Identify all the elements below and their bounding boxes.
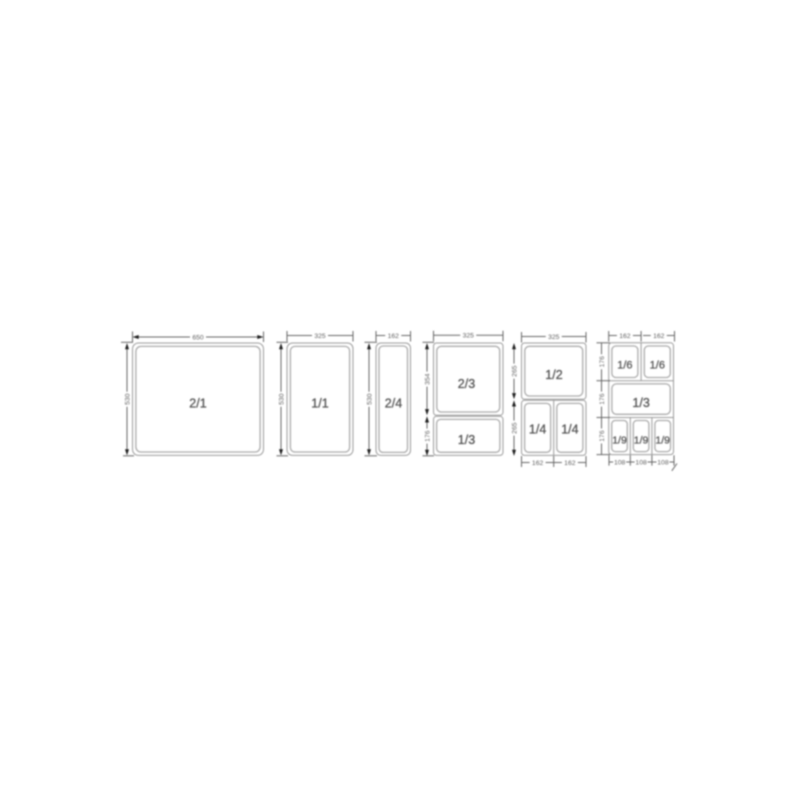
svg-text:325: 325: [548, 334, 560, 341]
svg-text:162: 162: [653, 333, 665, 340]
svg-text:1/9: 1/9: [612, 435, 627, 447]
svg-text:176: 176: [424, 430, 431, 442]
svg-text:176: 176: [599, 356, 606, 368]
svg-text:530: 530: [124, 393, 131, 405]
svg-text:530: 530: [278, 393, 285, 405]
svg-text:162: 162: [564, 460, 576, 467]
svg-text:162: 162: [532, 460, 544, 467]
svg-text:162: 162: [619, 333, 631, 340]
svg-text:108: 108: [614, 459, 626, 466]
svg-text:1/1: 1/1: [311, 397, 328, 411]
svg-text:176: 176: [599, 430, 606, 442]
svg-text:1/6: 1/6: [650, 360, 665, 372]
svg-text:325: 325: [314, 333, 326, 340]
svg-text:650: 650: [192, 334, 204, 341]
svg-text:1/3: 1/3: [458, 433, 475, 447]
svg-text:108: 108: [635, 459, 647, 466]
svg-text:265: 265: [511, 422, 518, 434]
svg-text:1/2: 1/2: [545, 368, 562, 382]
svg-text:1/9: 1/9: [634, 435, 649, 447]
svg-text:1/3: 1/3: [632, 396, 649, 410]
svg-text:176: 176: [599, 393, 606, 405]
svg-text:530: 530: [366, 393, 373, 405]
svg-text:2/3: 2/3: [458, 377, 475, 391]
svg-text:265: 265: [511, 365, 518, 377]
svg-text:325: 325: [463, 333, 475, 340]
svg-text:108: 108: [657, 459, 669, 466]
svg-text:1/9: 1/9: [655, 435, 670, 447]
svg-text:1/4: 1/4: [561, 423, 578, 437]
svg-text:1/6: 1/6: [617, 360, 632, 372]
svg-text:162: 162: [388, 333, 400, 340]
svg-text:2/4: 2/4: [385, 397, 402, 411]
svg-text:1/4: 1/4: [529, 423, 546, 437]
svg-text:2/1: 2/1: [189, 397, 206, 411]
svg-text:354: 354: [424, 373, 431, 385]
